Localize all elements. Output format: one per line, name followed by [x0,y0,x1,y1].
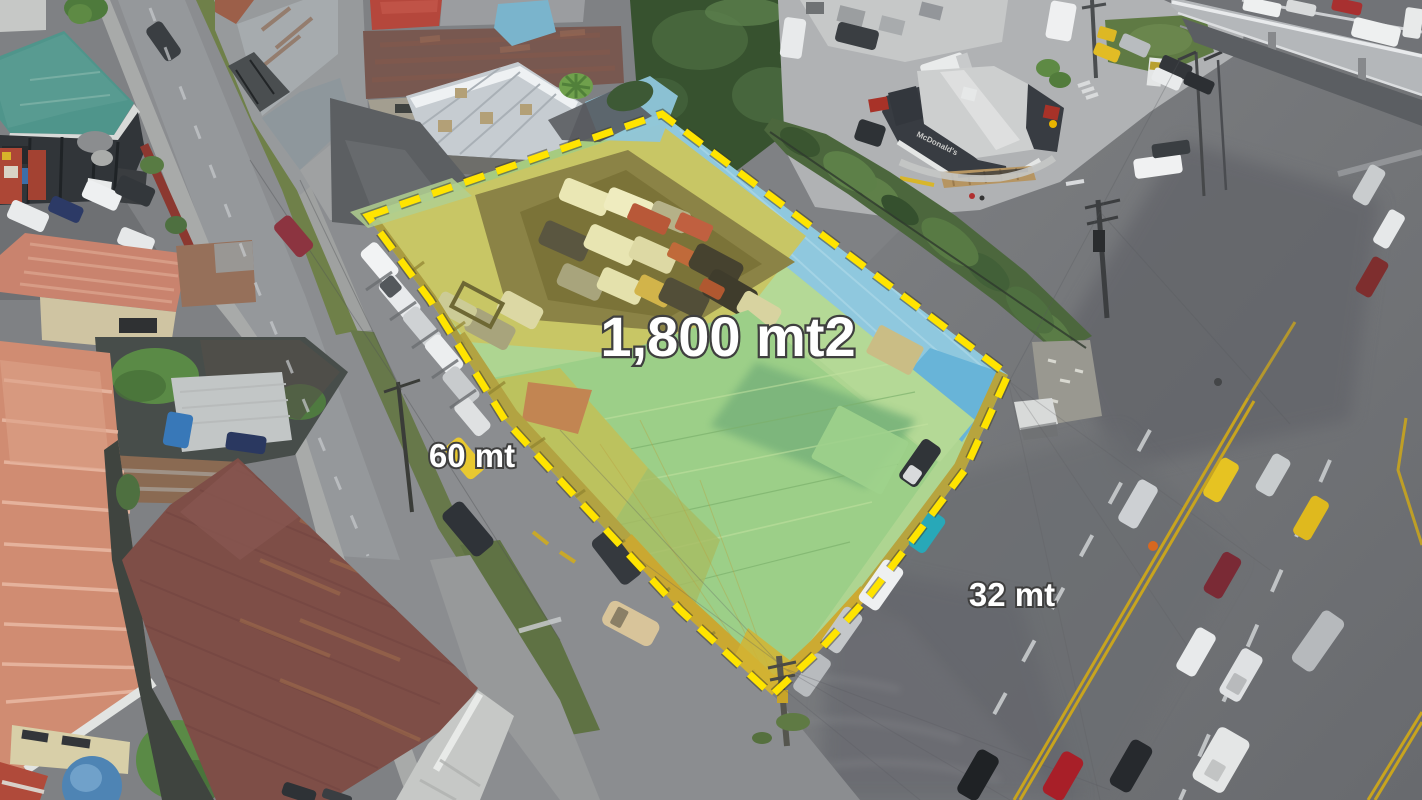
svg-text:60 mt: 60 mt [429,437,515,474]
svg-text:32 mt: 32 mt [969,576,1055,613]
svg-text:1,800 mt2: 1,800 mt2 [600,305,855,368]
